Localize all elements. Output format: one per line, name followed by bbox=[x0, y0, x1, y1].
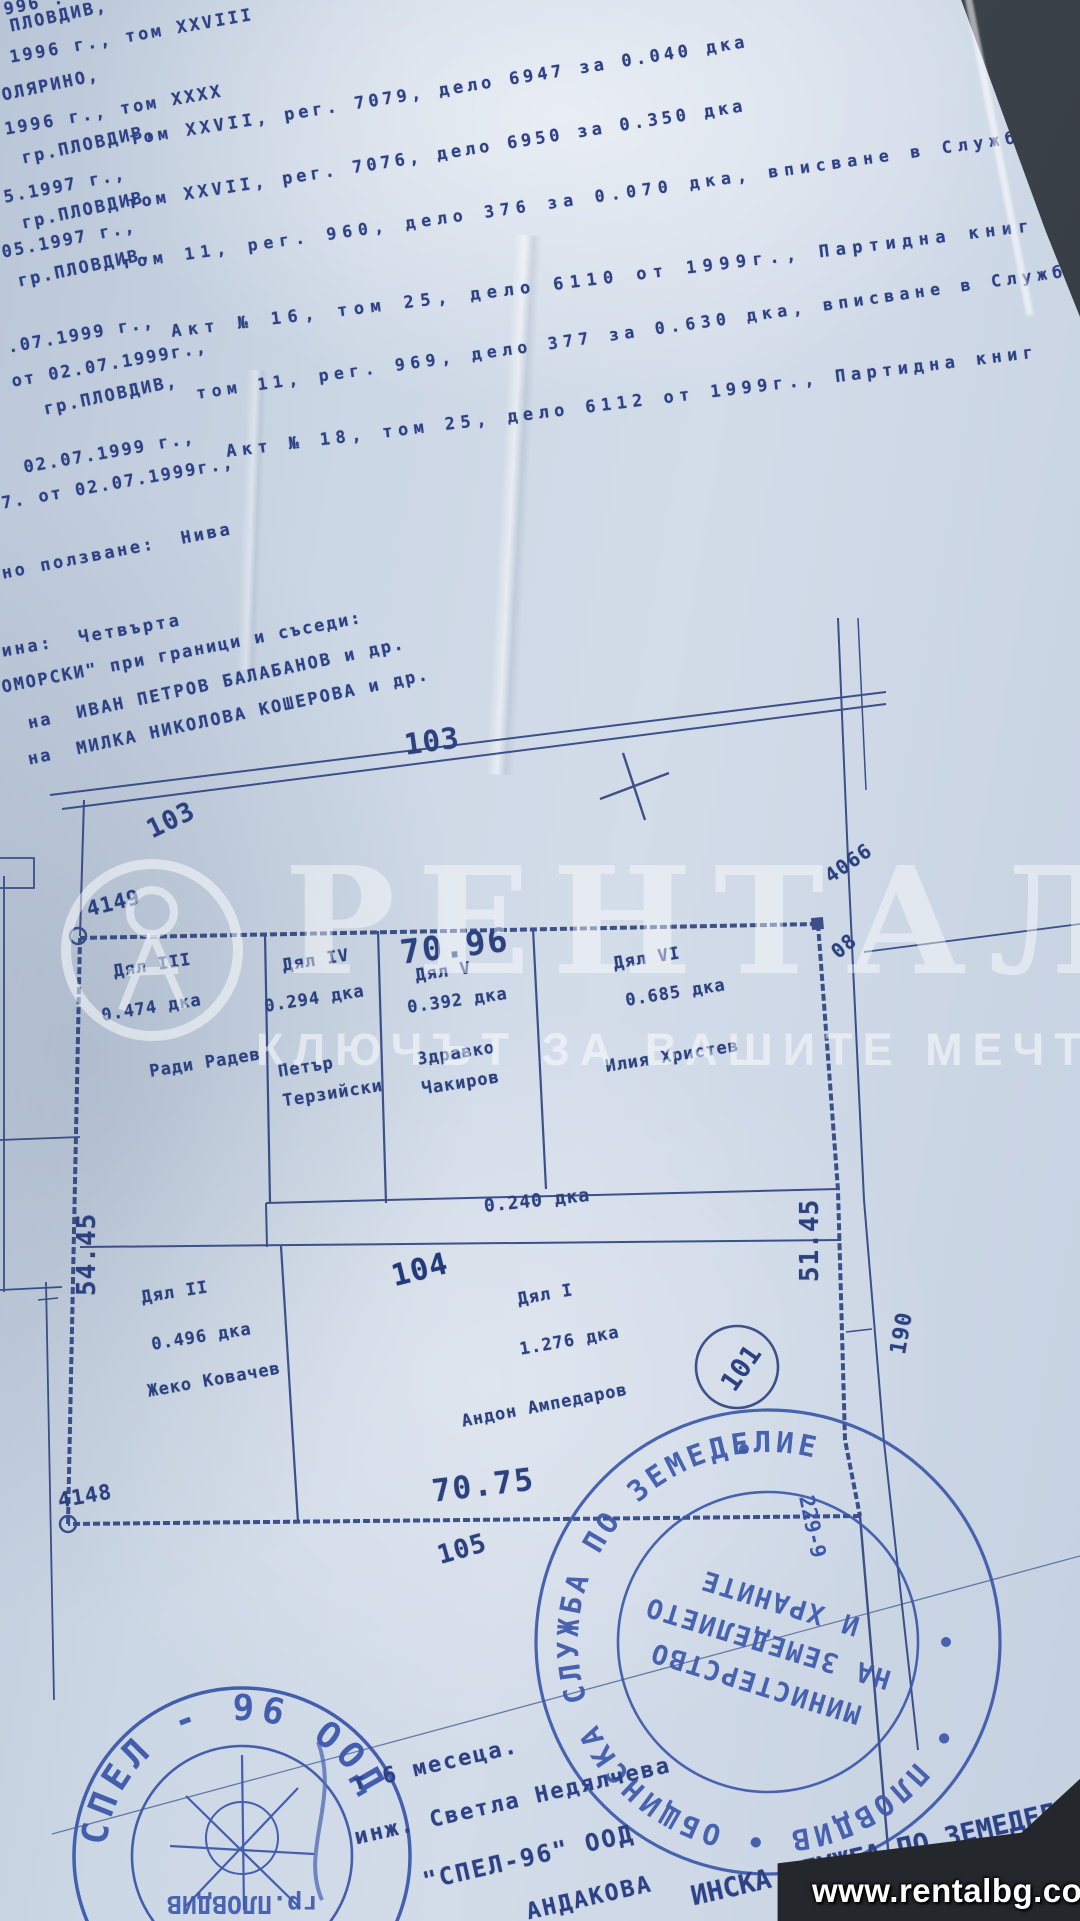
site-url-badge: www.rentalbg.com bbox=[812, 1872, 1080, 1910]
length-left: 54.45 bbox=[72, 1213, 102, 1296]
cadastral-sketch-photo: 996 . ПЛОВДИВ, 1996 г., том XXVIII ОЛЯРИ… bbox=[0, 0, 1080, 1921]
company-stamp-city: гр.ПЛОВДИВ bbox=[167, 1890, 318, 1919]
length-right: 51.45 bbox=[795, 1199, 825, 1282]
neighbour-101-label: 101 bbox=[715, 1340, 768, 1398]
